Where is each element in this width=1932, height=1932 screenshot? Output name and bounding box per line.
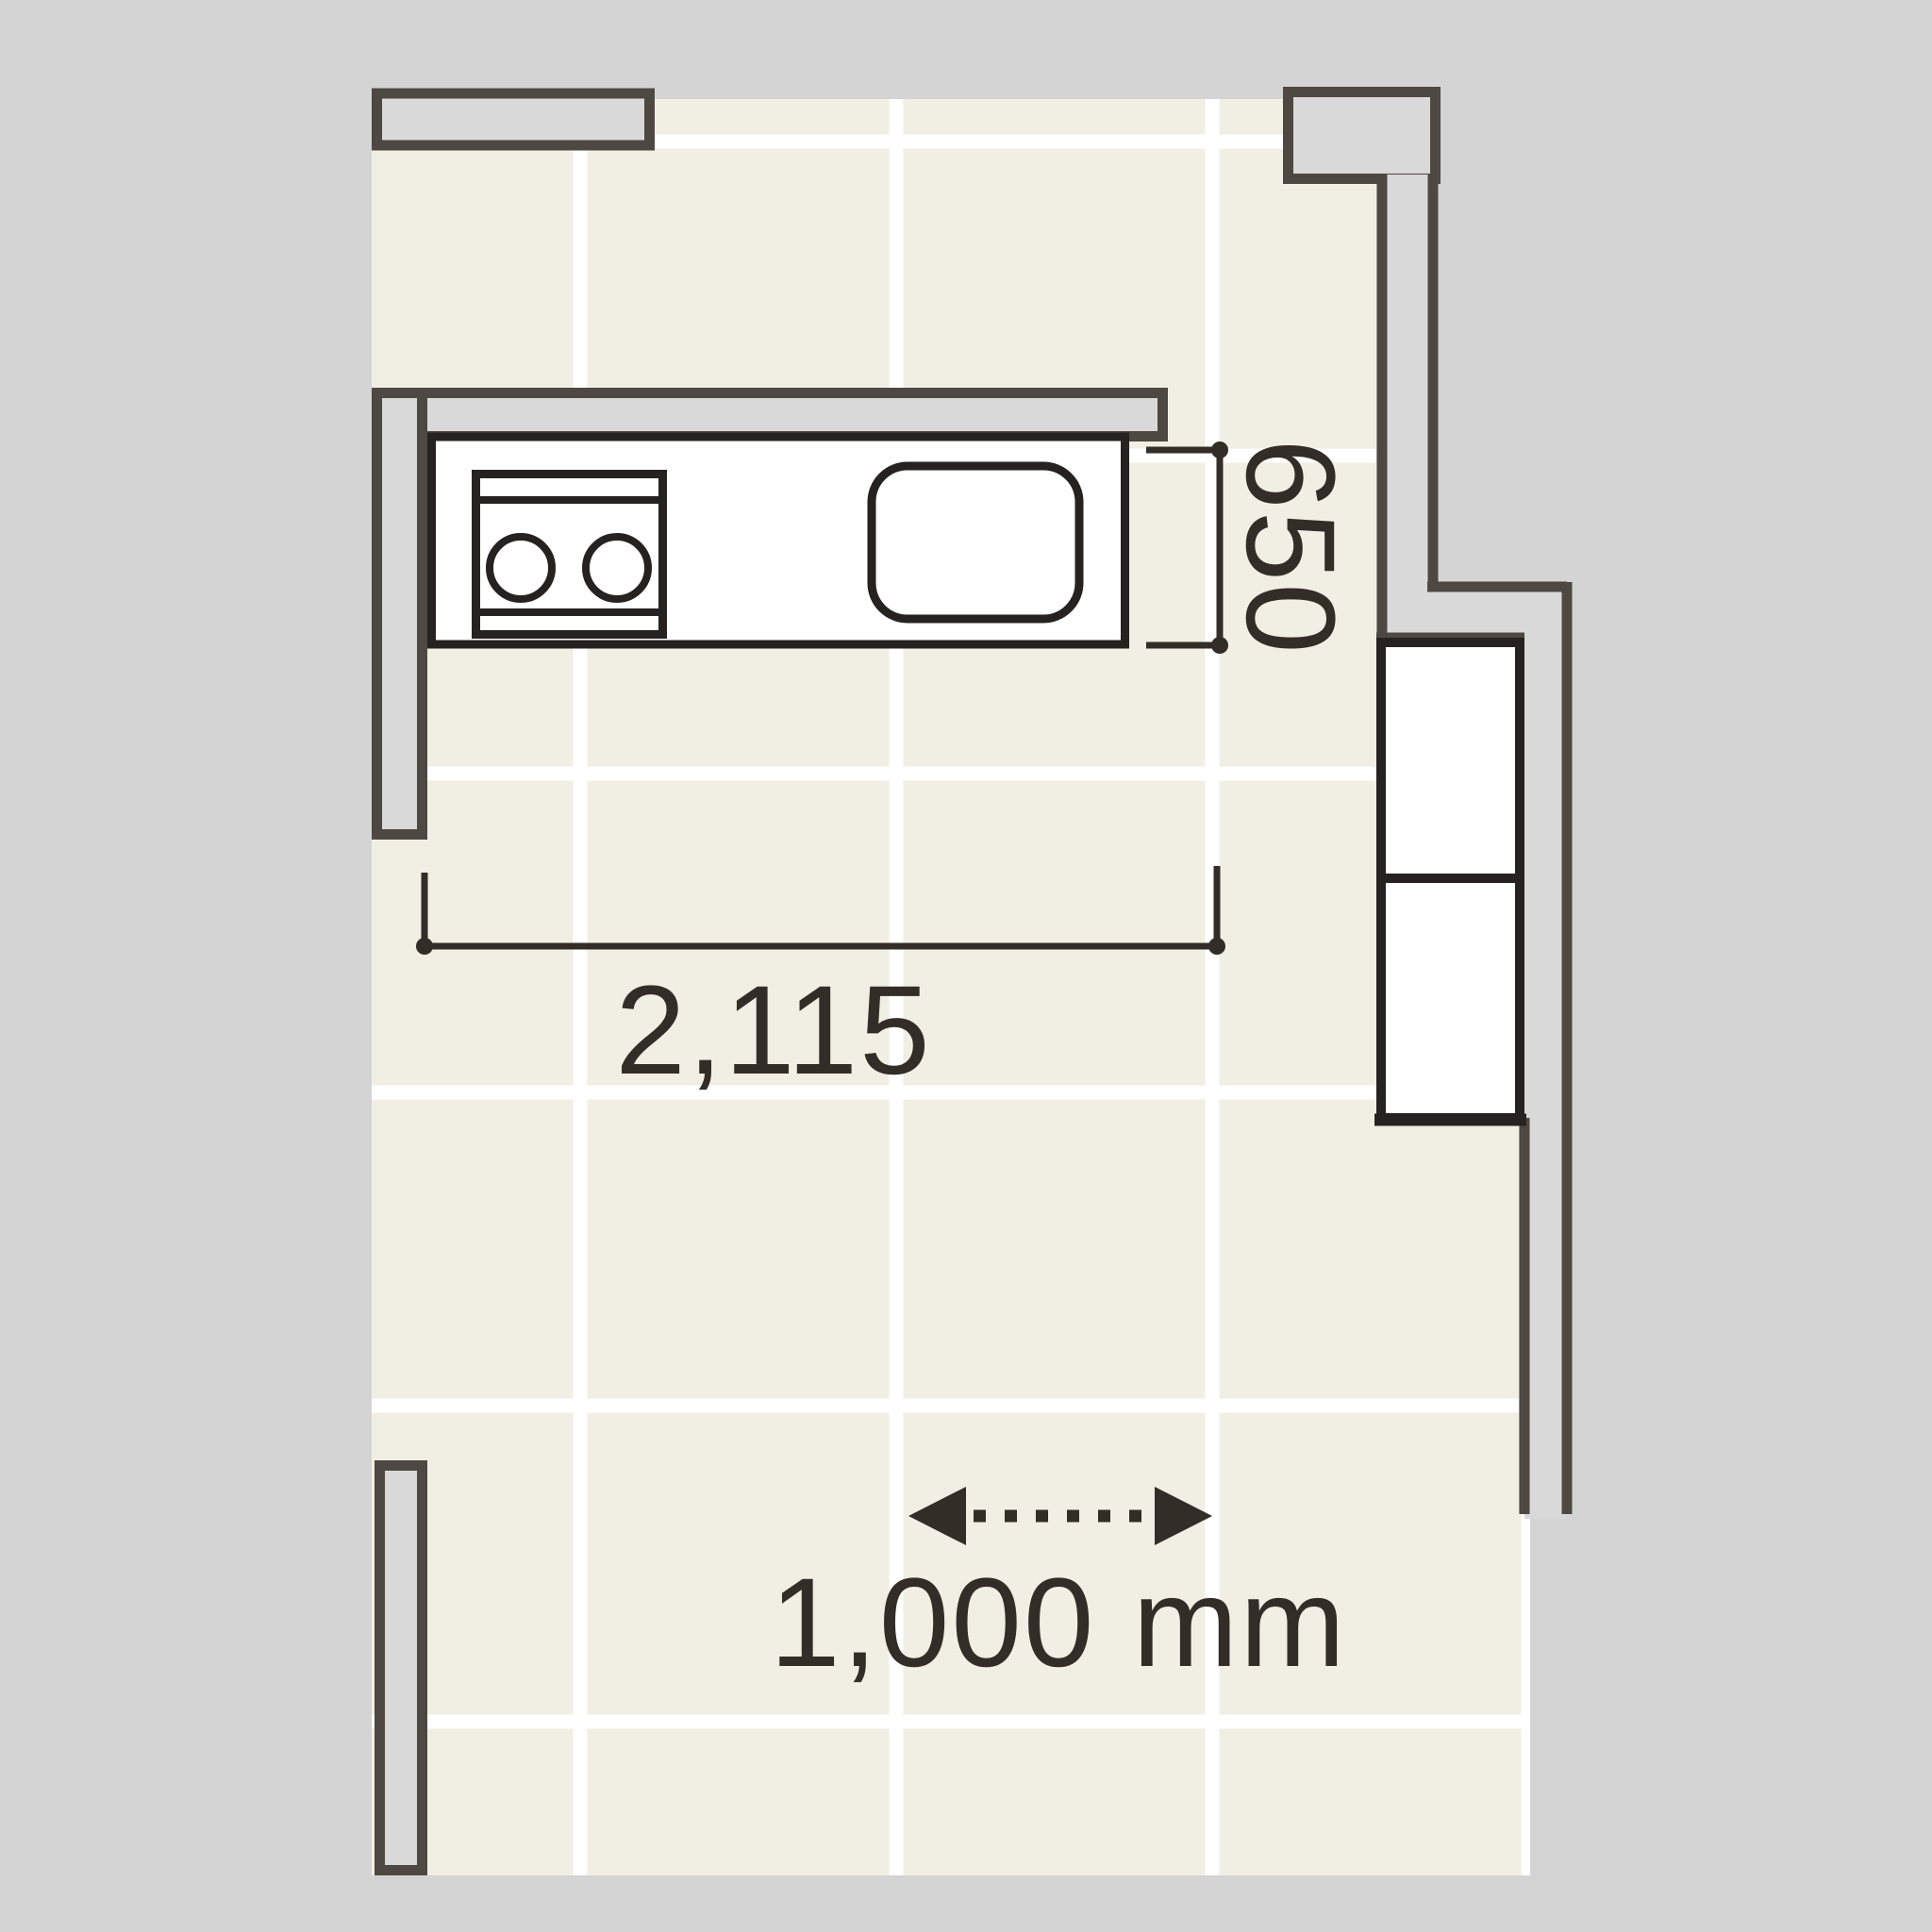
- dim-2115-label: 2,115: [615, 960, 931, 1101]
- wall-top-left: [377, 93, 650, 145]
- kitchen-floor-plan: 650 2,115 1,000 mm: [0, 0, 1932, 1932]
- dim-2115-end-dot: [416, 938, 433, 955]
- scale-label: 1,000 mm: [770, 1553, 1347, 1693]
- floor-plan-canvas: 650 2,115 1,000 mm: [0, 0, 1932, 1932]
- window-opening-2: [1381, 878, 1520, 1118]
- stove: [472, 475, 667, 635]
- wall-top-right: [1289, 92, 1436, 179]
- wall-bottom-left: [380, 1466, 423, 1871]
- sink: [872, 466, 1079, 619]
- wall-left: [377, 393, 423, 835]
- dim-650-label: 650: [1220, 439, 1360, 656]
- dim-2115-end-dot: [1208, 938, 1225, 955]
- window-opening-1: [1381, 642, 1520, 878]
- wall-kitchen-back: [377, 393, 1163, 437]
